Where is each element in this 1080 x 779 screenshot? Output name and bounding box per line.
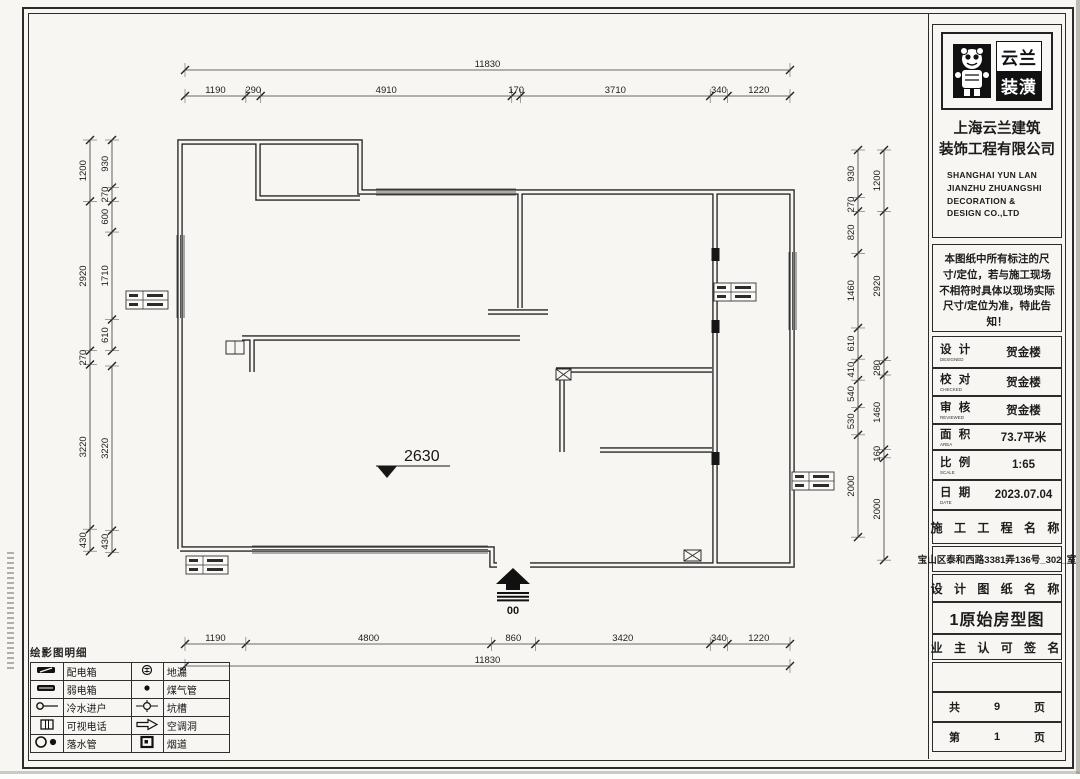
brand-mark: 云兰 装潢 — [996, 41, 1042, 101]
legend-label: 地漏 — [163, 663, 229, 681]
weak-current-box-icon — [31, 681, 64, 699]
legend-table: 配电箱 地漏 弱电箱 煤气管 冷水进户 坑槽 — [30, 662, 230, 753]
pit-slot-icon — [131, 699, 163, 717]
legend-label: 烟道 — [163, 735, 229, 753]
area-value: 73.7平米 — [986, 429, 1061, 445]
distribution-box-icon — [31, 663, 64, 681]
reviewed-label: 审 核 — [940, 399, 986, 415]
area-label: 面 积 — [940, 426, 986, 442]
reviewed-value: 贺金楼 — [986, 402, 1061, 418]
project-name-header: 施 工 工 程 名 称 — [932, 510, 1062, 544]
legend-title: 绘影图明细 — [30, 645, 230, 660]
legend-row: 可视电话 空调洞 — [31, 717, 230, 735]
ac-hole-icon — [131, 717, 163, 735]
info-row-date: 日 期DATE 2023.07.04 — [932, 480, 1062, 510]
page-current-row: 第 1 页 — [932, 722, 1062, 752]
gas-pipe-icon — [131, 681, 163, 699]
brand-top-label: 云兰 — [997, 42, 1041, 71]
designed-value: 贺金楼 — [986, 344, 1061, 360]
info-row-scale: 比 例SCALE 1:65 — [932, 450, 1062, 480]
title-block: 云兰 装潢 上海云兰建筑 装饰工程有限公司 SHANGHAI YUN LAN J… — [932, 0, 1062, 774]
legend-label: 可视电话 — [63, 717, 131, 735]
company-panel: 云兰 装潢 上海云兰建筑 装饰工程有限公司 SHANGHAI YUN LAN J… — [932, 24, 1062, 238]
legend-label: 配电箱 — [63, 663, 131, 681]
pages-total-row: 共 9 页 — [932, 692, 1062, 722]
legend-row: 落水管 烟道 — [31, 735, 230, 753]
designed-label: 设 计 — [940, 341, 986, 357]
info-row-reviewed: 审 核REVIEWED 贺金楼 — [932, 396, 1062, 424]
panda-mascot-icon — [952, 43, 992, 99]
drawing-sheet: 2630 00 11830119029049101703710340122011… — [0, 0, 1080, 774]
scale-value: 1:65 — [986, 459, 1061, 471]
drawing-name-header: 设 计 图 纸 名 称 — [932, 574, 1062, 602]
legend-label: 空调洞 — [163, 717, 229, 735]
cold-water-inlet-icon — [31, 699, 64, 717]
floor-drain-icon — [131, 663, 163, 681]
scan-edge-right — [1076, 0, 1080, 774]
dimension-notice: 本图纸中所有标注的尺寸/定位，若与施工现场不相符时具体以现场实际尺寸/定位为准，… — [932, 244, 1062, 332]
down-pipe-icon — [31, 735, 64, 753]
company-name-cn: 上海云兰建筑 装饰工程有限公司 — [933, 119, 1061, 161]
info-row-area: 面 积AREA 73.7平米 — [932, 424, 1062, 450]
checked-value: 贺金楼 — [986, 374, 1061, 390]
company-logo: 云兰 装潢 — [941, 32, 1053, 110]
legend: 绘影图明细 配电箱 地漏 弱电箱 煤气管 — [30, 645, 230, 753]
date-label: 日 期 — [940, 484, 986, 500]
pages-total-number: 9 — [994, 701, 1000, 713]
legend-label: 冷水进户 — [63, 699, 131, 717]
date-value: 2023.07.04 — [986, 489, 1061, 501]
company-name-en: SHANGHAI YUN LAN JIANZHU ZHUANGSHI DECOR… — [947, 169, 1061, 220]
legend-label: 煤气管 — [163, 681, 229, 699]
scan-edge-text — [7, 552, 14, 670]
project-address: 宝山区泰和西路3381弄136号_302_室 — [932, 546, 1062, 572]
drawing-title: 1原始房型图 — [932, 602, 1062, 634]
owner-signature-box — [932, 662, 1062, 692]
page-current-number: 1 — [994, 731, 1000, 743]
owner-signature-header: 业 主 认 可 签 名 — [932, 634, 1062, 660]
legend-row: 弱电箱 煤气管 — [31, 681, 230, 699]
info-row-designed: 设 计DESIGNED 贺金楼 — [932, 336, 1062, 368]
legend-label: 坑槽 — [163, 699, 229, 717]
flue-icon — [131, 735, 163, 753]
video-phone-icon — [31, 717, 64, 735]
brand-bottom-label: 装潢 — [997, 71, 1041, 100]
scale-label: 比 例 — [940, 454, 986, 470]
legend-label: 弱电箱 — [63, 681, 131, 699]
checked-label: 校 对 — [940, 371, 986, 387]
title-block-separator — [928, 13, 929, 759]
legend-label: 落水管 — [63, 735, 131, 753]
legend-row: 配电箱 地漏 — [31, 663, 230, 681]
info-row-checked: 校 对CHECKED 贺金楼 — [932, 368, 1062, 396]
legend-row: 冷水进户 坑槽 — [31, 699, 230, 717]
